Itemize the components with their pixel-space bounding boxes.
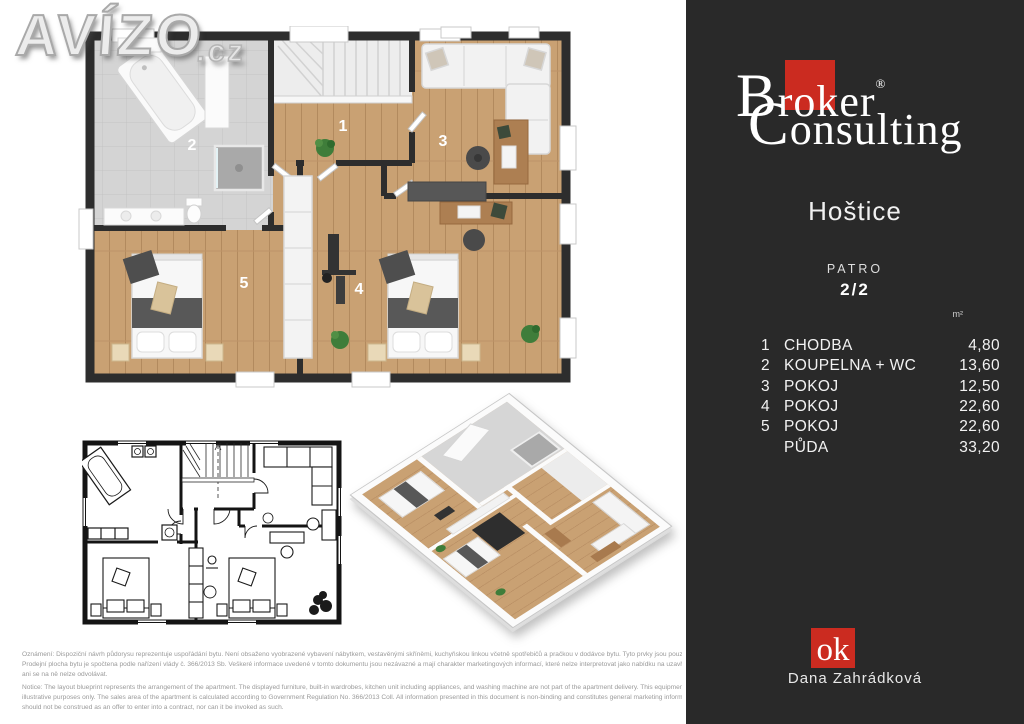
disclaimer-line: Notice: The layout blueprint represents … [22,683,682,693]
room-number-1: 1 [339,118,348,135]
row-num: 4 [746,398,770,416]
blueprint-2d [82,440,344,628]
floor-value: 2/2 [686,280,1024,300]
row-area: 22,60 [959,418,1000,436]
table-row: 3 POKOJ 12,50 [746,377,1000,397]
row-label: CHODBA [784,337,968,355]
footer-red-square: ok [811,628,855,668]
room-number-2: 2 [188,137,197,154]
row-label: KOUPELNA + WC [784,357,959,375]
row-label: POKOJ [784,398,959,416]
row-area: 12,50 [959,378,1000,396]
brand-panel: Broker® Consulting Hoštice PATRO 2/2 m² … [686,0,1024,724]
iso-3d-view [352,386,692,642]
iso-floor [351,394,671,627]
table-row: PŮDA 33,20 [746,437,1000,457]
table-row: 2 KOUPELNA + WC 13,60 [746,356,1000,376]
disclaimer-line: illustrative purposes only. The sales ar… [22,693,682,703]
row-area: 33,20 [959,439,1000,457]
disclaimer-line: Prodejní plocha bytu je spočtena podle n… [22,660,682,670]
property-title: Hoštice [686,196,1024,227]
room-number-4: 4 [355,281,364,298]
table-row: 1 CHODBA 4,80 [746,336,1000,356]
table-row: 5 POKOJ 22,60 [746,417,1000,437]
logo-line2: Consulting [748,96,962,159]
unit-label: m² [953,309,964,319]
row-label: PŮDA [784,439,959,457]
disclaimer-line: Oznámení: Dispoziční návrh půdorysu repr… [22,650,682,660]
disclaimer-line: should not be construed as an offer to e… [22,703,682,713]
avizo-tld: .cz [196,35,247,68]
iso-gym [434,506,455,521]
disclaimer-line: ani se na ně nelze odvolávat. [22,670,682,680]
avizo-brand: AVÍZO [14,3,206,68]
room-number-3: 3 [439,133,448,150]
room-table: 1 CHODBA 4,80 2 KOUPELNA + WC 13,60 3 PO… [746,336,1000,458]
row-num: 3 [746,378,770,396]
row-area: 13,60 [959,357,1000,375]
disclaimer: Oznámení: Dispoziční návrh půdorysu repr… [22,650,682,713]
row-num: 2 [746,357,770,375]
main-floor-plan: 1 2 3 4 5 [78,26,578,390]
table-row: 4 POKOJ 22,60 [746,397,1000,417]
agent-name: Dana Zahrádková [686,670,1024,687]
avizo-watermark: AVÍZO.cz [14,2,256,69]
broker-consulting-logo: Broker® Consulting [686,0,1024,180]
row-label: POKOJ [784,378,959,396]
toilet [186,198,202,223]
footer-watermark: Broker Consulting [686,600,1024,724]
sideboard-room3 [408,182,486,201]
row-label: POKOJ [784,418,959,436]
room-number-5: 5 [240,275,249,292]
shower [215,146,263,190]
row-num: 5 [746,418,770,436]
row-area: 4,80 [968,337,1000,355]
row-num: 1 [746,337,770,355]
wardrobe [284,176,312,358]
row-area: 22,60 [959,398,1000,416]
listing-page: 1 2 3 4 5 AVÍZO.cz [0,0,1024,724]
floor-label: PATRO [686,262,1024,276]
iso-plant2 [493,587,507,597]
registered-mark: ® [876,76,887,91]
